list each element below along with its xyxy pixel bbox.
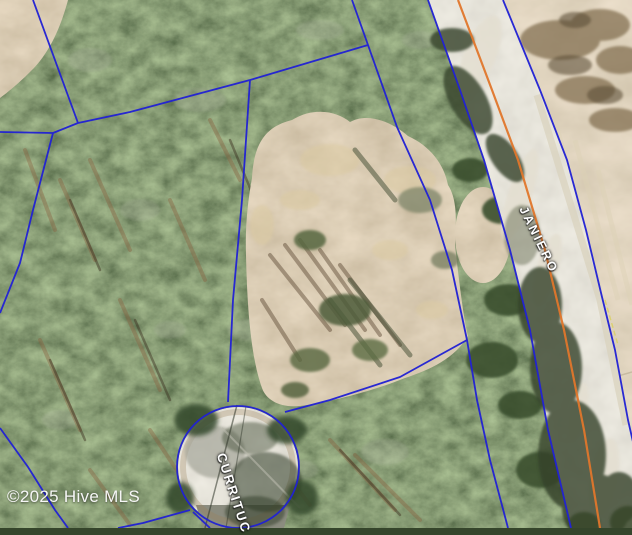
aerial-imagery bbox=[0, 0, 632, 528]
attribution-watermark: ©2025 Hive MLS bbox=[7, 487, 140, 507]
aerial-map: JANIERO CURRITUC ©2025 Hive MLS bbox=[0, 0, 632, 528]
